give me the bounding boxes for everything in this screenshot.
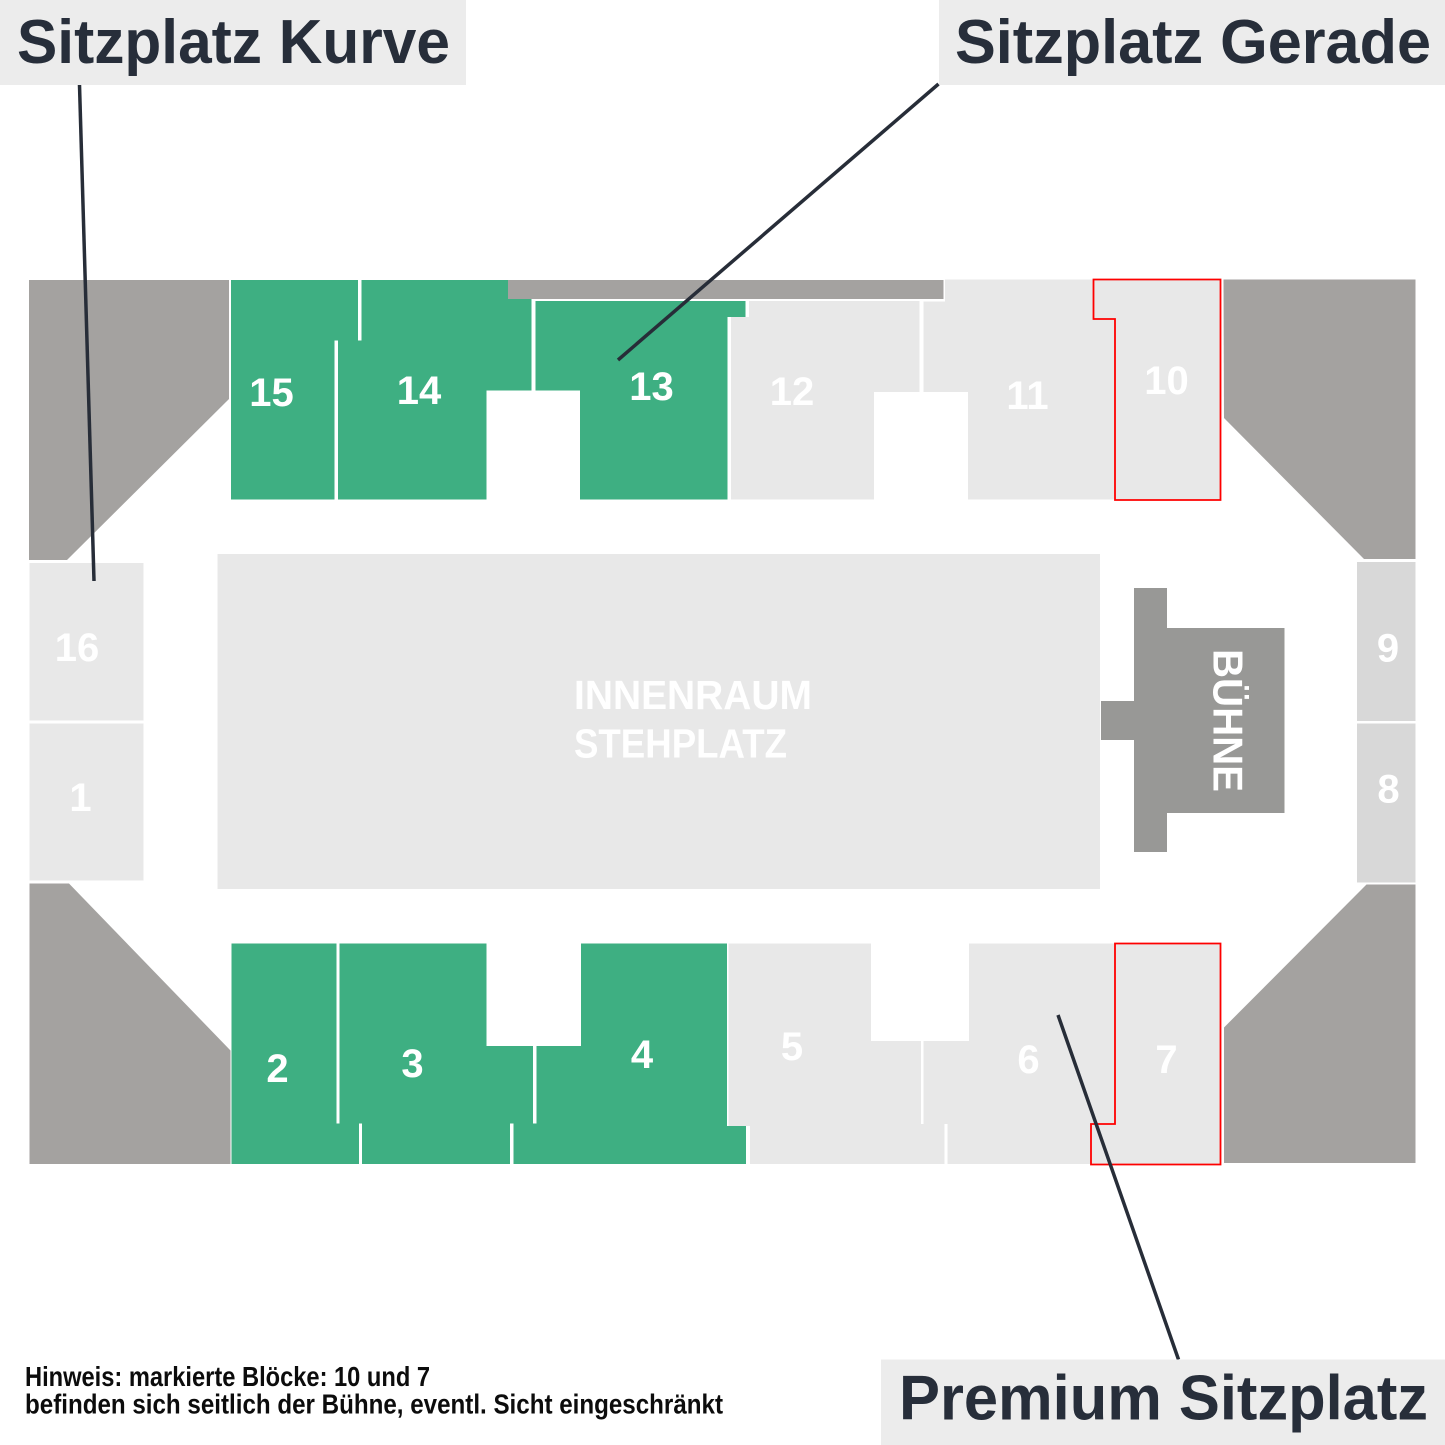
- svg-text:INNENRAUM: INNENRAUM: [574, 672, 812, 718]
- svg-text:3: 3: [401, 1042, 423, 1086]
- svg-text:BÜHNE: BÜHNE: [1205, 649, 1252, 792]
- svg-text:STEHPLATZ: STEHPLATZ: [574, 721, 787, 767]
- svg-text:12: 12: [770, 370, 815, 414]
- svg-text:16: 16: [55, 626, 100, 670]
- svg-text:8: 8: [1377, 768, 1399, 812]
- svg-text:1: 1: [69, 776, 91, 820]
- svg-text:5: 5: [781, 1025, 803, 1069]
- svg-text:Sitzplatz Gerade: Sitzplatz Gerade: [955, 8, 1431, 77]
- svg-text:2: 2: [266, 1047, 288, 1091]
- svg-text:14: 14: [397, 369, 442, 413]
- svg-text:4: 4: [631, 1033, 654, 1077]
- svg-text:Premium Sitzplatz: Premium Sitzplatz: [899, 1364, 1428, 1434]
- svg-text:15: 15: [249, 371, 294, 415]
- svg-text:Hinweis: markierte Blöcke: 10: Hinweis: markierte Blöcke: 10 und 7: [25, 1361, 430, 1392]
- svg-text:Sitzplatz Kurve: Sitzplatz Kurve: [17, 8, 450, 77]
- svg-text:9: 9: [1377, 627, 1399, 671]
- svg-text:11: 11: [1006, 374, 1048, 418]
- svg-text:7: 7: [1155, 1038, 1177, 1082]
- svg-text:6: 6: [1017, 1038, 1039, 1082]
- svg-text:13: 13: [629, 365, 674, 409]
- svg-text:befinden sich seitlich der Büh: befinden sich seitlich der Bühne, eventl…: [25, 1389, 723, 1420]
- svg-text:10: 10: [1144, 359, 1189, 403]
